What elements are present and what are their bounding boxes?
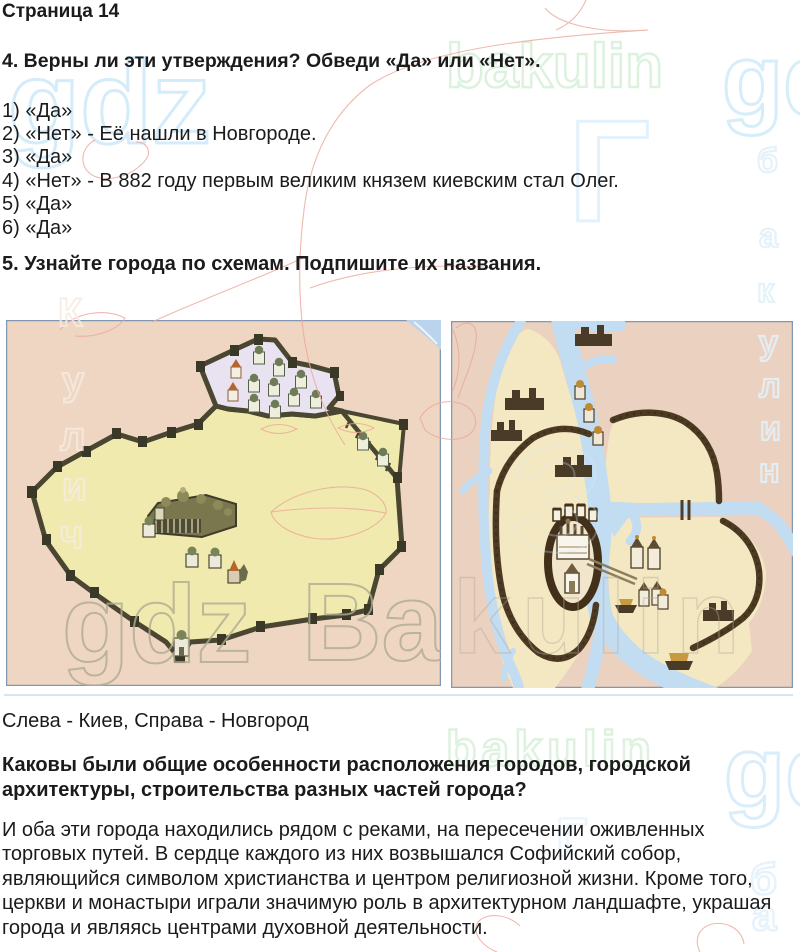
svg-text:gd: gd [722, 24, 800, 136]
svg-text:Ba: Ba [302, 561, 441, 684]
svg-text:gdz: gdz [62, 563, 251, 686]
svg-text:gdz: gdz [724, 716, 800, 828]
svg-text:З: З [511, 415, 605, 583]
